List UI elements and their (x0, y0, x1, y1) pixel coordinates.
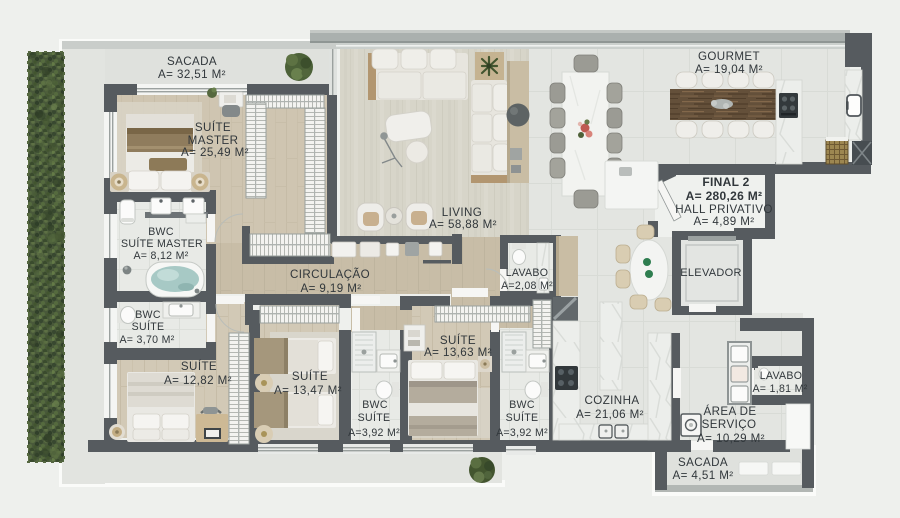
svg-text:BWC: BWC (362, 399, 388, 411)
svg-text:A= 1,81 M²: A= 1,81 M² (752, 383, 807, 395)
svg-text:A= 13,47 M²: A= 13,47 M² (274, 384, 342, 397)
svg-text:A= 13,63 M²: A= 13,63 M² (424, 346, 492, 359)
svg-text:A= 9,19 M²: A= 9,19 M² (300, 282, 361, 295)
svg-text:SUÍTE: SUÍTE (358, 411, 391, 424)
svg-text:FINAL 2: FINAL 2 (702, 175, 749, 189)
svg-text:BWC: BWC (509, 399, 535, 411)
svg-text:A= 25,49 M²: A= 25,49 M² (181, 146, 249, 159)
svg-text:ELEVADOR: ELEVADOR (680, 267, 742, 279)
svg-text:SUÍTE MASTER: SUÍTE MASTER (121, 237, 203, 250)
svg-text:A=3,92 M²: A=3,92 M² (348, 427, 400, 439)
svg-text:SUÍTE: SUÍTE (132, 320, 165, 333)
svg-text:SUÍTE: SUÍTE (181, 360, 217, 373)
svg-text:LAVABO: LAVABO (506, 267, 549, 279)
svg-text:LAVABO: LAVABO (760, 370, 803, 382)
svg-text:BWC: BWC (148, 226, 174, 238)
svg-text:A= 12,82 M²: A= 12,82 M² (164, 374, 232, 387)
svg-text:A=2,08 M²: A=2,08 M² (501, 280, 553, 292)
svg-text:GOURMET: GOURMET (698, 50, 760, 63)
svg-text:SACADA: SACADA (167, 55, 217, 68)
svg-text:A=3,92 M²: A=3,92 M² (496, 427, 548, 439)
svg-text:SUÍTE: SUÍTE (292, 370, 328, 383)
svg-text:SACADA: SACADA (678, 456, 728, 469)
svg-text:A= 19,04 M²: A= 19,04 M² (695, 63, 763, 76)
svg-text:A= 3,70 M²: A= 3,70 M² (119, 334, 174, 346)
svg-text:A= 21,06 M²: A= 21,06 M² (576, 408, 644, 421)
svg-text:A= 4,51 M²: A= 4,51 M² (672, 469, 733, 482)
svg-text:SUÍTE: SUÍTE (195, 121, 231, 134)
svg-text:A= 32,51 M²: A= 32,51 M² (158, 68, 226, 81)
svg-text:ÁREA DE: ÁREA DE (703, 405, 756, 418)
svg-text:A= 4,89 M²: A= 4,89 M² (693, 215, 754, 228)
svg-text:CIRCULAÇÃO: CIRCULAÇÃO (290, 268, 370, 281)
svg-text:A= 8,12 M²: A= 8,12 M² (133, 250, 188, 262)
svg-text:A= 280,26 M²: A= 280,26 M² (686, 189, 763, 203)
svg-text:BWC: BWC (135, 309, 161, 321)
svg-text:COZINHA: COZINHA (585, 394, 640, 407)
svg-text:A= 10,29 M²: A= 10,29 M² (697, 432, 765, 445)
svg-text:A= 58,88 M²: A= 58,88 M² (429, 218, 497, 231)
svg-text:SERVIÇO: SERVIÇO (702, 418, 757, 431)
svg-text:SUÍTE: SUÍTE (506, 411, 539, 424)
